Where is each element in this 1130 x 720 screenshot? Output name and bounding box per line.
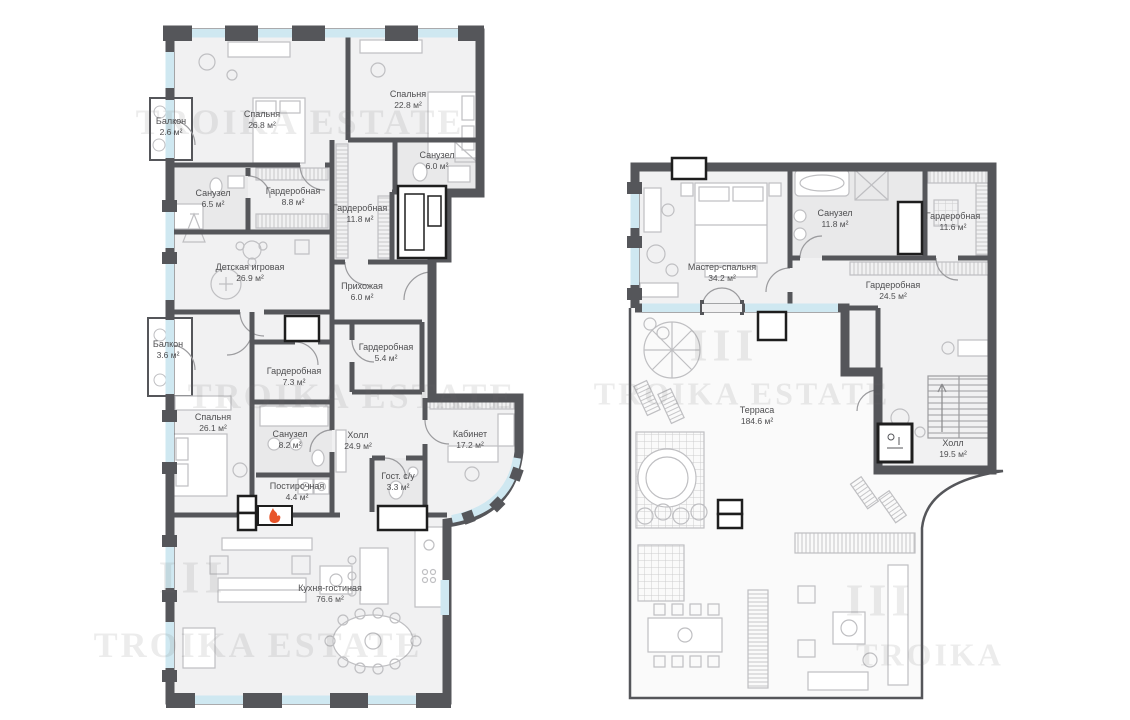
room-label-sanuzel-3: Санузел 8.2 м²: [272, 429, 307, 451]
room-label-sanuzel-2: Санузел 6.5 м²: [195, 188, 230, 210]
room-label-prihozhaya: Прихожая 6.0 м²: [341, 281, 383, 303]
room-label-garderobnaya-6: Гардеробная 24.5 м²: [866, 280, 920, 302]
floor1-plan: [148, 26, 524, 709]
room-label-kuhnya-gostinaya: Кухня-гостиная 76.6 м²: [298, 583, 362, 605]
room-label-garderobnaya-5: Гардеробная 11.6 м²: [926, 211, 980, 233]
room-label-garderobnaya-1: Гардеробная 8.8 м²: [266, 186, 320, 208]
room-label-garderobnaya-2: Гардеробная 11.8 м²: [333, 203, 387, 225]
floor-plan-image: TROIKA ESTATE TROIKA ESTATE III TROIKA E…: [0, 0, 1130, 720]
room-label-sanuzel-1: Санузел 6.0 м²: [419, 150, 454, 172]
room-label-postirochnaya: Постирочная 4.4 м²: [270, 481, 324, 503]
room-label-balkon-2: Балкон 3.6 м²: [153, 339, 183, 361]
fireplace: [258, 506, 292, 525]
room-label-holl-2: Холл 19.5 м²: [939, 438, 967, 460]
room-label-terrasa: Терраса 184.6 м²: [740, 405, 775, 427]
room-label-gost-su: Гост. с/у 3.3 м²: [381, 471, 414, 493]
room-label-holl-1: Холл 24.9 м²: [344, 430, 372, 452]
room-label-sanuzel-4: Санузел 11.8 м²: [817, 208, 852, 230]
room-label-kabinet: Кабинет 17.2 м²: [453, 429, 487, 451]
room-label-detskaya: Детская игровая 26.9 м²: [216, 262, 285, 284]
room-label-spalnya-2: Спальня 22.8 м²: [390, 89, 426, 111]
room-label-master-spalnya: Мастер-спальня 34.2 м²: [688, 262, 756, 284]
room-label-garderobnaya-3: Гардеробная 5.4 м²: [359, 342, 413, 364]
room-label-balkon-1: Балкон 2.6 м²: [156, 116, 186, 138]
room-label-spalnya-3: Спальня 26.1 м²: [195, 412, 231, 434]
room-label-garderobnaya-4: Гардеробная 7.3 м²: [267, 366, 321, 388]
room-label-spalnya-1: Спальня 26.8 м²: [244, 109, 280, 131]
floor2-plan: [627, 158, 1003, 698]
